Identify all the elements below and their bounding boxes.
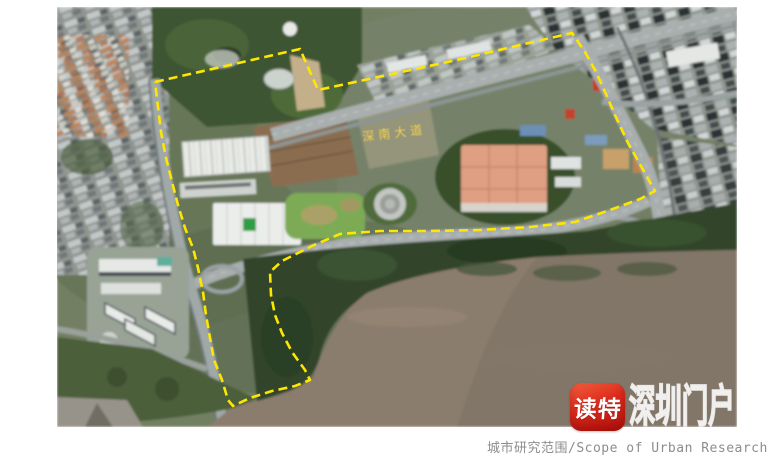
watermark: 读特 深圳门户 <box>570 383 778 431</box>
dute-logo-icon: 读特 <box>570 383 625 431</box>
shenzhen-portal-watermark-text: 深圳门户 <box>629 385 735 429</box>
satellite-terrain: 深南大道 <box>57 7 737 427</box>
terrain-art <box>57 7 737 427</box>
article-figure: 深南大道 读特 深圳门户 城市研究范围/Scope of Urban Resea… <box>0 0 778 458</box>
figure-caption: 城市研究范围/Scope of Urban Research <box>487 437 768 456</box>
dute-logo-text: 读特 <box>572 390 622 424</box>
satellite-photo: 深南大道 读特 深圳门户 <box>57 7 737 427</box>
terrain-svg: 深南大道 <box>57 7 737 427</box>
